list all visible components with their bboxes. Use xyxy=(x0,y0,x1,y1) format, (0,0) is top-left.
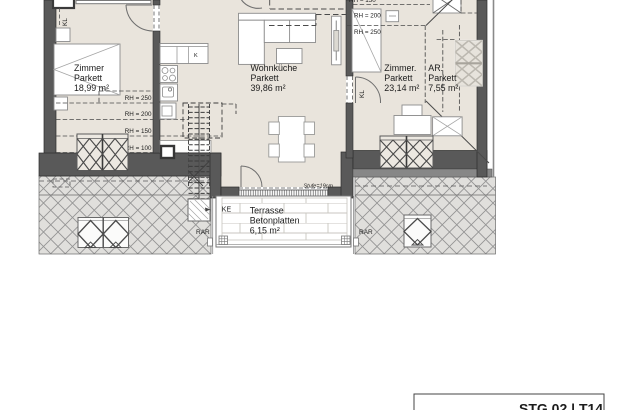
svg-text:7,55 m²: 7,55 m² xyxy=(428,83,458,93)
svg-text:RH = 150: RH = 150 xyxy=(349,0,376,4)
svg-text:Terrasse: Terrasse xyxy=(250,206,284,216)
svg-text:RAR: RAR xyxy=(196,229,210,236)
svg-text:18,99 m²: 18,99 m² xyxy=(74,83,109,93)
svg-text:RH = 150: RH = 150 xyxy=(125,128,152,135)
svg-text:AR.: AR. xyxy=(428,63,443,73)
svg-text:Wohnküche: Wohnküche xyxy=(251,63,298,73)
svg-text:KE: KE xyxy=(222,206,232,213)
svg-text:STG 02 | T14: STG 02 | T14 xyxy=(519,400,603,410)
svg-text:RH = 200: RH = 200 xyxy=(354,13,381,20)
svg-text:Parkett: Parkett xyxy=(428,73,457,83)
svg-text:K: K xyxy=(194,53,198,59)
svg-text:Stufe=19cm: Stufe=19cm xyxy=(304,184,334,190)
svg-text:Zimmer.: Zimmer. xyxy=(384,63,416,73)
svg-text:Parkett: Parkett xyxy=(251,73,280,83)
svg-text:RH = 250: RH = 250 xyxy=(125,95,152,102)
svg-text:Parkett: Parkett xyxy=(74,73,103,83)
svg-text:39,86 m²: 39,86 m² xyxy=(251,83,286,93)
svg-text:RH = 100: RH = 100 xyxy=(125,145,152,152)
svg-text:23,14 m²: 23,14 m² xyxy=(384,83,419,93)
svg-text:RH = 200: RH = 200 xyxy=(125,111,152,118)
svg-text:Betonplatten: Betonplatten xyxy=(250,216,300,226)
svg-text:RH = 250: RH = 250 xyxy=(354,29,381,36)
svg-text:Parkett: Parkett xyxy=(384,73,413,83)
svg-text:KL: KL xyxy=(359,90,366,98)
svg-text:6,15 m²: 6,15 m² xyxy=(250,226,280,236)
svg-text:Zimmer: Zimmer xyxy=(74,63,104,73)
svg-text:KL: KL xyxy=(62,18,69,26)
svg-text:RAR: RAR xyxy=(359,229,373,236)
